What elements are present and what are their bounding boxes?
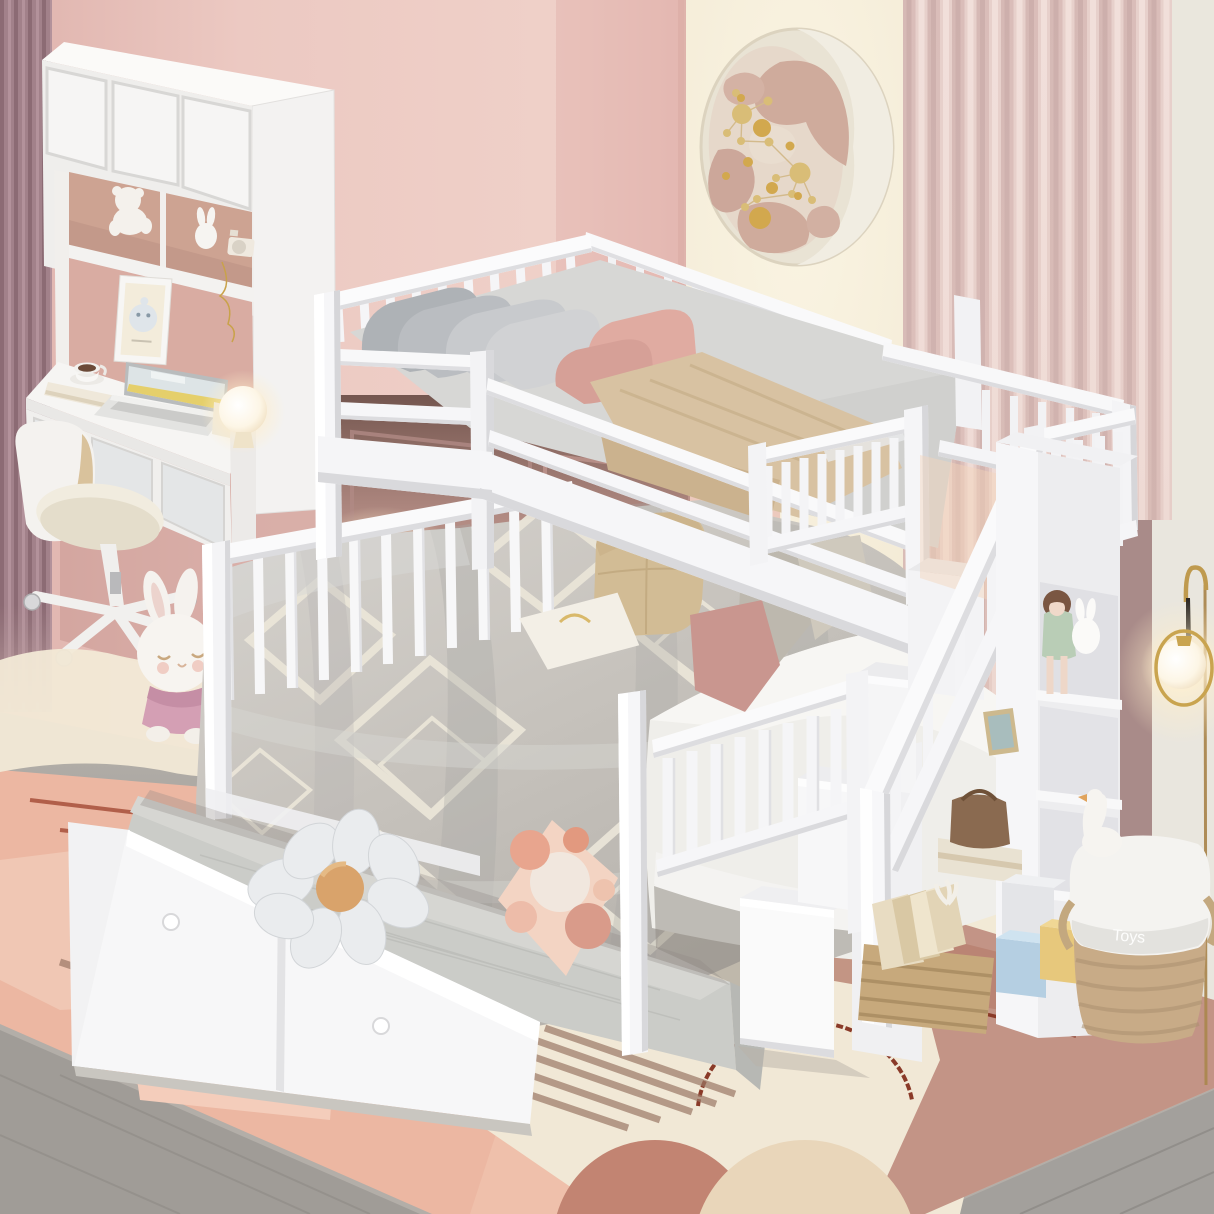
svg-text:Toys: Toys: [1112, 927, 1146, 947]
